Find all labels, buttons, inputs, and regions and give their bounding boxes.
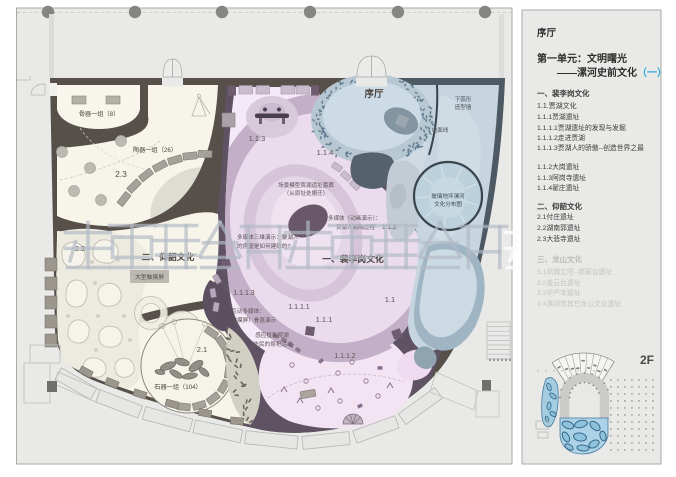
svg-text:1.1.1: 1.1.1: [316, 315, 333, 324]
svg-text:互动多媒体：: 互动多媒体：: [231, 307, 265, 315]
svg-text:3.2姜云台遗址: 3.2姜云台遗址: [537, 278, 581, 287]
svg-text:骨器一组（8）: 骨器一组（8）: [79, 110, 120, 118]
svg-text:大型触摸屏: 大型触摸屏: [135, 273, 164, 281]
svg-text:1.1.4: 1.1.4: [317, 148, 334, 157]
svg-text:（触摸屏）骨笛演示: （触摸屏）骨笛演示: [226, 316, 277, 324]
svg-text:1.1: 1.1: [385, 295, 395, 304]
svg-text:1.1.3阿岗寺遗址: 1.1.3阿岗寺遗址: [537, 173, 586, 182]
svg-text:3.4漯河市其它龙山文化遗址: 3.4漯河市其它龙山文化遗址: [537, 299, 621, 308]
svg-text:三、龙山文化: 三、龙山文化: [537, 254, 582, 264]
svg-text:1.1.2大岗遗址: 1.1.2大岗遗址: [537, 162, 580, 171]
svg-text:下弧形: 下弧形: [455, 95, 472, 103]
svg-text:先民的祭祀活动: 先民的祭祀活动: [253, 340, 293, 348]
svg-text:3.1凤城立阳--郝家台遗址: 3.1凤城立阳--郝家台遗址: [537, 267, 612, 276]
svg-text:造型墙: 造型墙: [455, 103, 472, 111]
svg-text:2.3: 2.3: [115, 169, 127, 179]
svg-text:石器一组（104）: 石器一组（104）: [154, 383, 201, 391]
svg-text:（从原址处搬迁）: （从原址处搬迁）: [284, 189, 329, 197]
svg-text:1.1.1.1: 1.1.1.1: [288, 304, 310, 311]
svg-text:多媒体（动画演示）：: 多媒体（动画演示）：: [328, 214, 381, 222]
svg-text:的房屋是如何建筑的?: 的房屋是如何建筑的?: [237, 242, 290, 250]
svg-text:1.1.1.3: 1.1.1.3: [233, 290, 255, 297]
svg-text:1.1.4翟庄遗址: 1.1.4翟庄遗址: [537, 183, 580, 192]
svg-text:一、裴李岗文化: 一、裴李岗文化: [537, 88, 590, 98]
svg-text:1.1.1.2走进贾湖: 1.1.1.2走进贾湖: [537, 133, 585, 142]
svg-text:1.1.1贾湖遗址: 1.1.1贾湖遗址: [537, 112, 580, 121]
svg-text:3.3毕严寺遗址: 3.3毕严寺遗址: [537, 288, 581, 297]
svg-text:1.1.贾湖文化: 1.1.贾湖文化: [537, 101, 577, 110]
svg-text:场景模型贾湖遗址墓葬: 场景模型贾湖遗址墓葬: [278, 181, 334, 189]
svg-text:1.1.3: 1.1.3: [249, 134, 266, 143]
svg-text:2.2湖南郭遗址: 2.2湖南郭遗址: [537, 223, 581, 232]
svg-text:2.1付庄遗址: 2.1付庄遗址: [537, 212, 574, 221]
svg-text:玻璃地坪漯河: 玻璃地坪漯河: [431, 192, 465, 200]
svg-text:2.3大悲寺遗址: 2.3大悲寺遗址: [537, 234, 581, 243]
svg-text:二、仰韶文化: 二、仰韶文化: [537, 201, 582, 211]
svg-text:地面线: 地面线: [432, 126, 449, 134]
svg-text:陶器一组（26）: 陶器一组（26）: [133, 146, 177, 154]
svg-text:第一单元：文明曙光: 第一单元：文明曙光: [537, 52, 627, 65]
svg-text:1.1.1.1贾湖遗址的发现与发掘: 1.1.1.1贾湖遗址的发现与发掘: [537, 123, 626, 132]
svg-text:1.1.1.2: 1.1.1.2: [334, 353, 356, 360]
svg-text:1.1.1.3贾湖人的骄傲--创造世界之最: 1.1.1.3贾湖人的骄傲--创造世界之最: [537, 143, 644, 152]
svg-text:序厅: 序厅: [364, 88, 384, 100]
svg-text:2F: 2F: [640, 353, 654, 367]
svg-text:——漯河史前文化（一）: ——漯河史前文化（一）: [557, 66, 667, 79]
svg-text:感应投影贾湖: 感应投影贾湖: [255, 331, 289, 339]
svg-text:2.1: 2.1: [197, 345, 207, 354]
svg-text:序厅: 序厅: [537, 27, 557, 39]
svg-text:文化分布图: 文化分布图: [434, 200, 462, 208]
